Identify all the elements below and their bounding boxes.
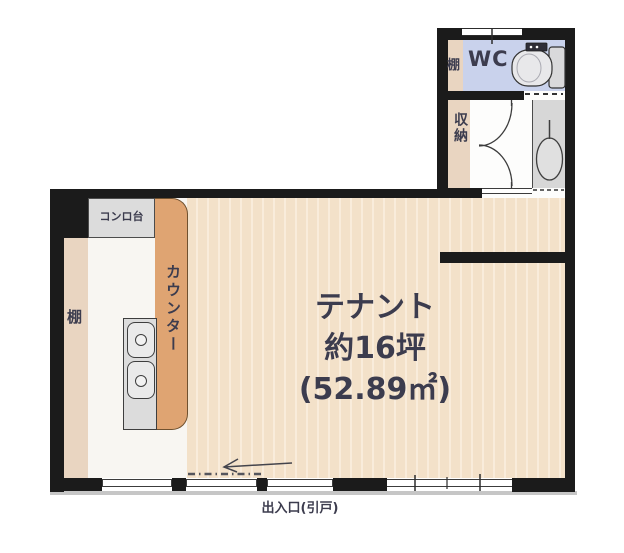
wall-shadow — [50, 491, 577, 495]
wc-shelf-label: 棚 — [447, 54, 460, 73]
wall-bottom-segment — [257, 478, 267, 491]
sink-drain-icon — [135, 375, 147, 387]
entrance-label: 出入口(引戸) — [230, 497, 370, 516]
wall-bottom-segment — [512, 478, 575, 492]
wall-bottom-segment — [172, 478, 186, 491]
storage-threshold — [482, 188, 532, 194]
wall-bottom-segment — [50, 478, 102, 491]
wc-label: WC — [468, 47, 509, 71]
counter-label: カウンター — [163, 264, 184, 354]
wall-wc-bottom — [448, 91, 524, 100]
tenant-name: テナント — [240, 287, 510, 328]
floor-plan: WC 棚 収納 棚 コンロ台 カウンター テナント 約16坪 (52.89㎡) … — [0, 0, 624, 553]
sink-drain-icon — [135, 334, 147, 346]
wash-area — [532, 100, 566, 188]
tenant-area-m2: (52.89㎡) — [240, 369, 510, 410]
kitchen-shelf-label: 棚 — [67, 306, 82, 327]
tenant-room-label: テナント 約16坪 (52.89㎡) — [240, 287, 510, 410]
sliding-door-panel — [267, 479, 333, 487]
wall-main-top — [50, 189, 448, 198]
kitchen-shelf-strip — [64, 238, 88, 478]
sliding-door-panel — [102, 479, 172, 487]
partition-wall — [440, 252, 565, 263]
wc-door-opening — [524, 91, 565, 100]
window-top — [462, 28, 522, 36]
tenant-area-tsubo: 約16坪 — [240, 328, 510, 369]
stove-stand-label: コンロ台 — [90, 208, 153, 224]
wall-left — [50, 189, 64, 492]
wall-right — [565, 28, 575, 492]
window-bottom — [387, 479, 512, 487]
storage-label: 収納 — [450, 112, 470, 144]
sliding-door-panel — [186, 479, 257, 487]
wall-bottom-segment — [333, 478, 387, 491]
